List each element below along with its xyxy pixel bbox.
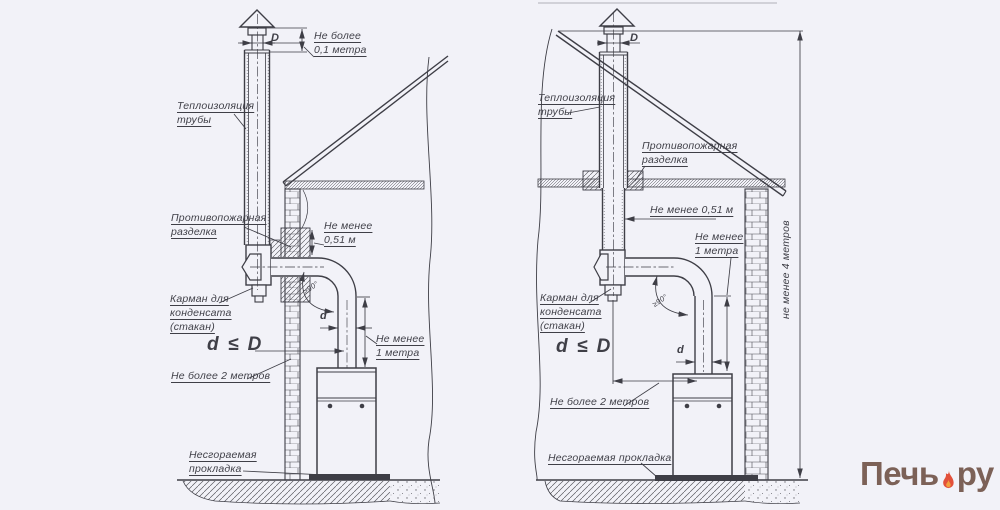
left-min-gap-label: Не менее 0,51 м [324, 220, 372, 248]
left-max-run-label: Не более 2 метров [171, 370, 270, 384]
flame-icon [941, 470, 956, 490]
left-insulation-label: Теплоизоляция трубы [177, 100, 254, 128]
left-ground [177, 480, 440, 504]
right-diameter-label: D [630, 31, 638, 46]
left-diameter-label: D [271, 31, 279, 46]
brand-name-left: Печь [860, 455, 939, 493]
right-chimney [594, 9, 712, 374]
left-stove [309, 368, 390, 480]
right-max-run-label: Не более 2 метров [550, 396, 649, 410]
left-top-clearance-label: Не более 0,1 метра [314, 30, 367, 58]
right-min-height-label: не менее 4 метров [780, 205, 794, 335]
left-fire-cut-label: Противопожарная разделка [171, 212, 266, 240]
left-small-d-label: d [320, 309, 327, 324]
brand-name-right: ру [957, 455, 994, 493]
blueprint-canvas: Не более 0,1 метра D Теплоизоляция трубы… [0, 0, 1000, 510]
right-small-d-label: d [677, 343, 684, 358]
left-formula-label: d ≤ D [207, 332, 263, 357]
right-insulation-label: Теплоизоляция трубы [538, 92, 615, 120]
left-diagram [177, 10, 448, 504]
right-pocket-label: Карман для конденсата (стакан) [540, 292, 602, 334]
right-min-vertical-label: Не менее 1 метра [695, 231, 743, 259]
left-pocket-label: Карман для конденсата (стакан) [170, 293, 232, 335]
left-min-vertical-label: Не менее 1 метра [376, 333, 424, 361]
right-pad-label: Несгораемая прокладка [548, 452, 671, 466]
right-diagram [535, 3, 808, 504]
brand-watermark: Печь ру [860, 455, 994, 493]
right-ground [536, 480, 808, 504]
right-fire-cut-label: Противопожарная разделка [642, 140, 737, 168]
left-pad-label: Несгораемая прокладка [189, 449, 257, 477]
right-min-gap-label: Не менее 0,51 м [650, 204, 733, 218]
right-formula-label: d ≤ D [556, 334, 612, 359]
diagram-linework [0, 0, 1000, 510]
